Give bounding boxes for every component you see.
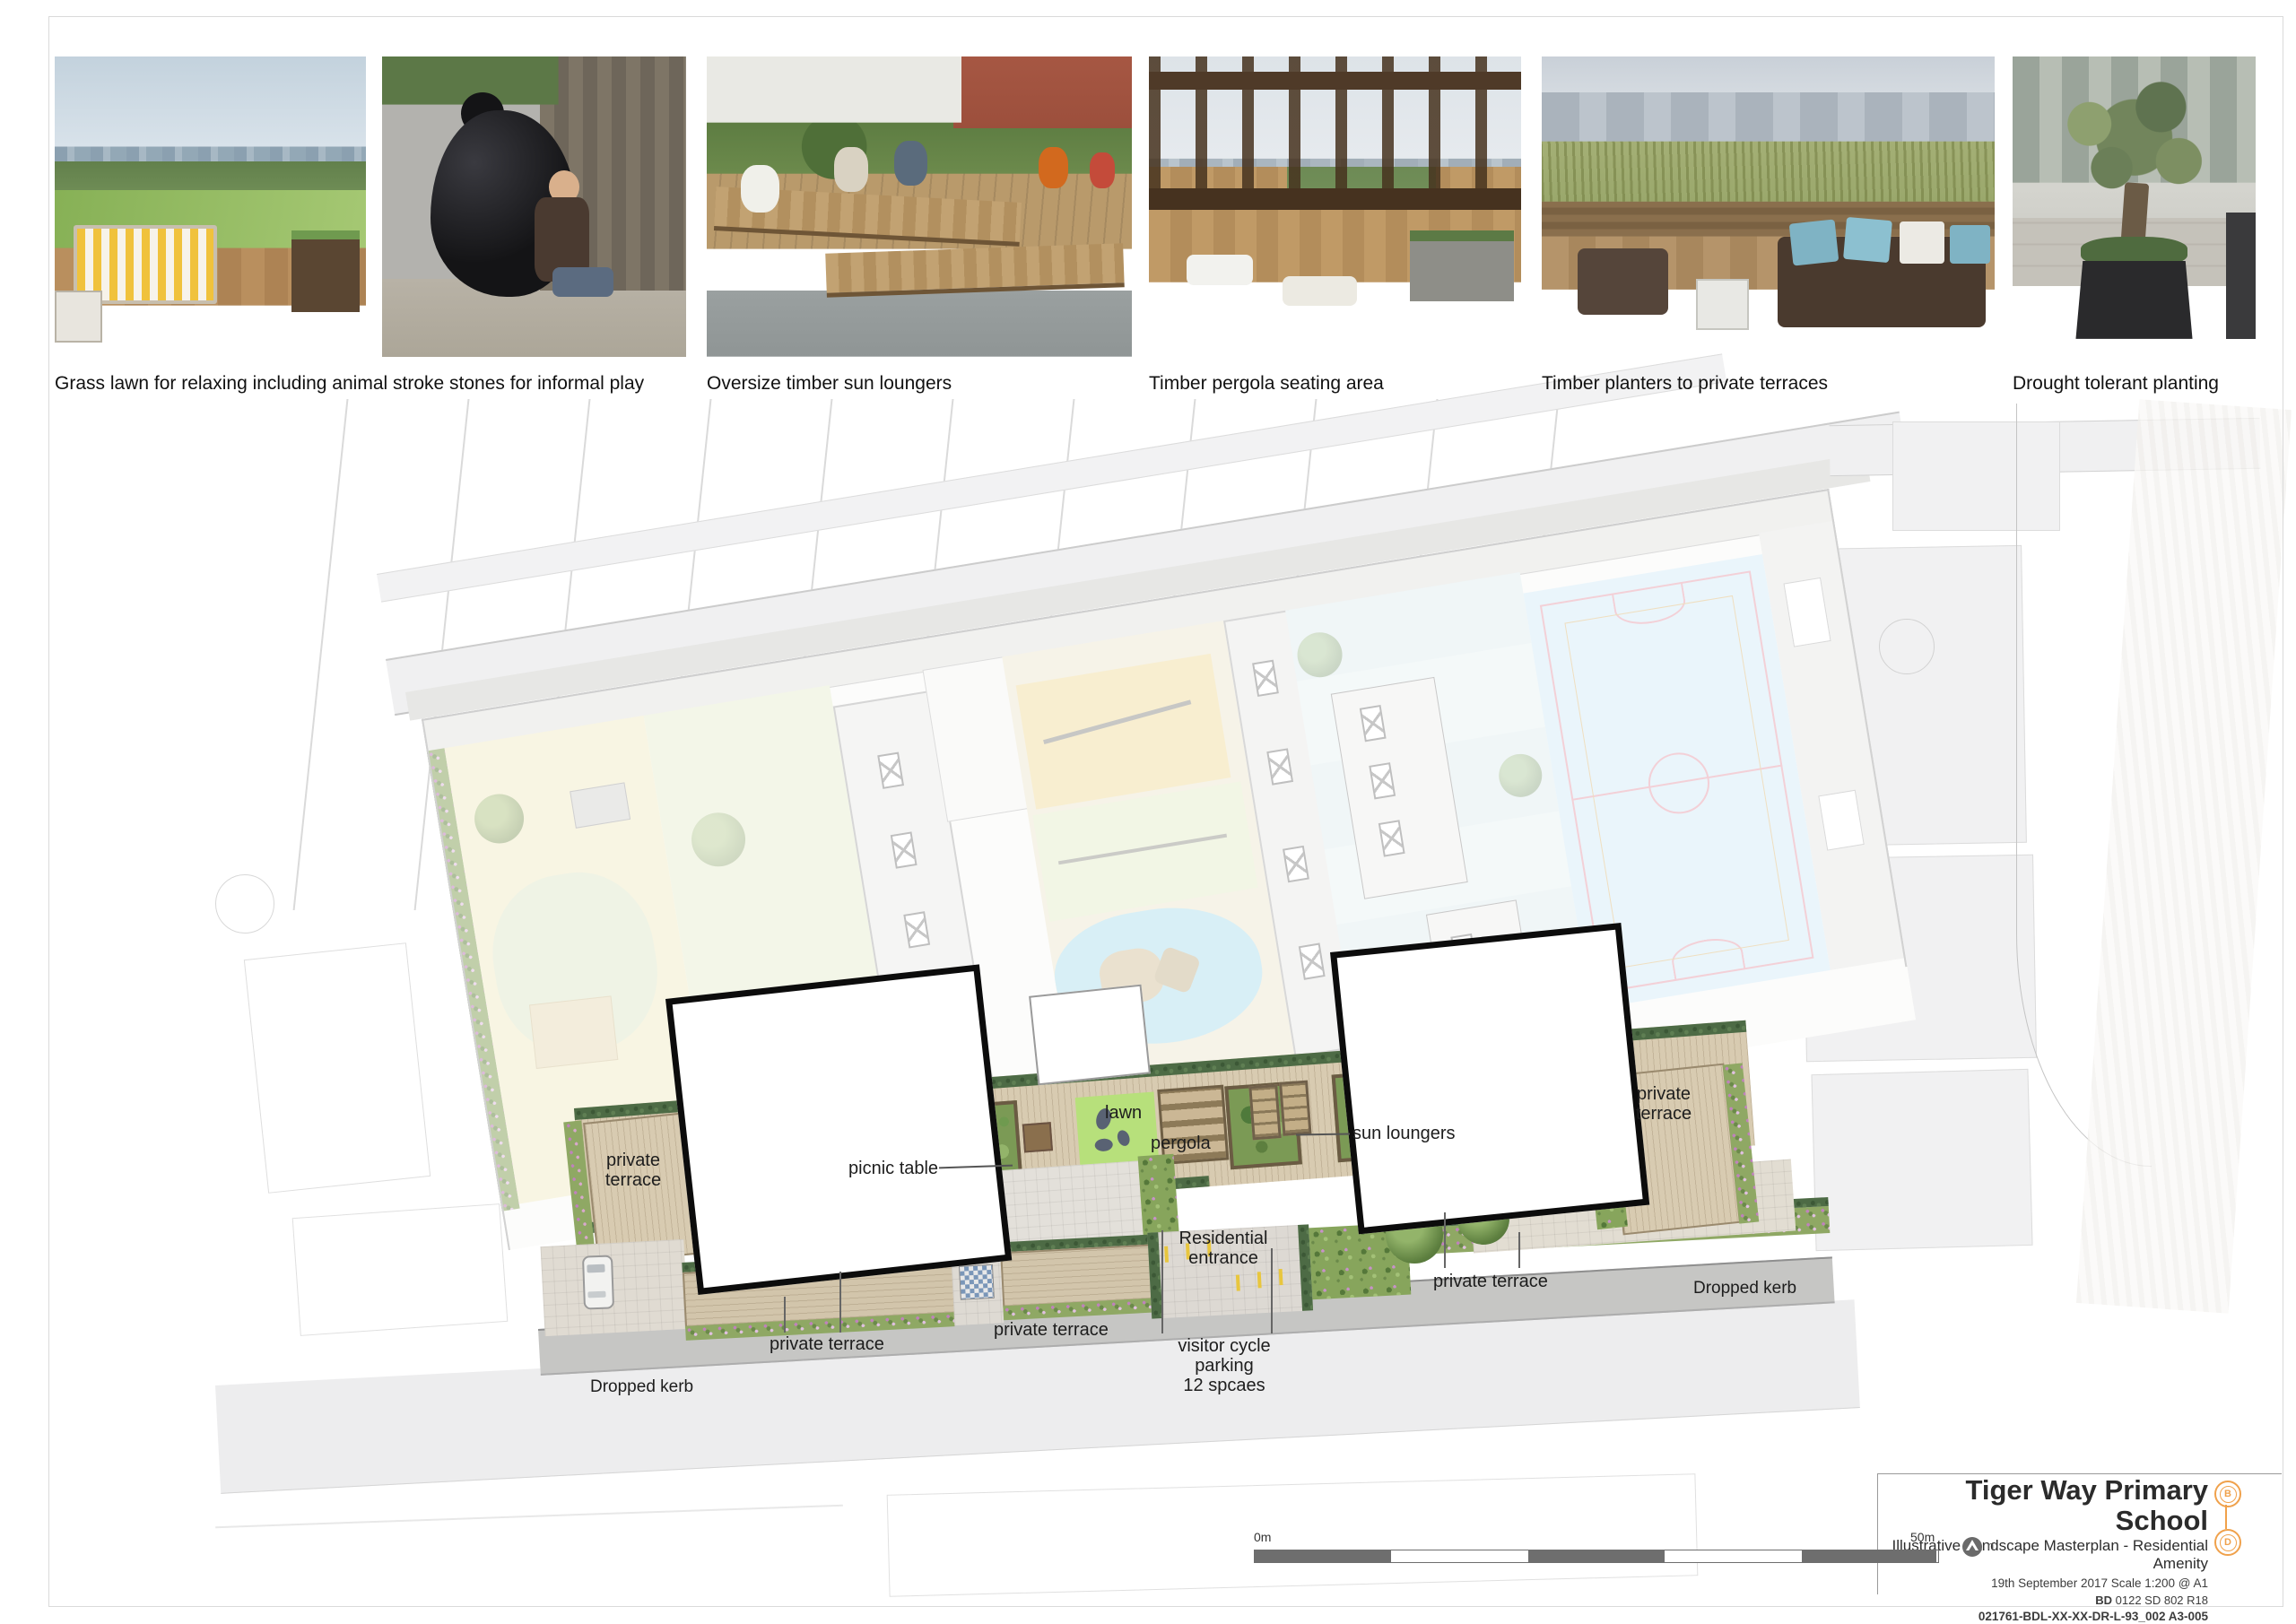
leader-line: [1161, 1230, 1163, 1333]
side-table: [55, 291, 102, 343]
revision-marker-b: B: [2214, 1481, 2241, 1507]
lounger: [825, 244, 1124, 298]
scale-bar-end-label: 50m: [1910, 1530, 1935, 1544]
person: [1090, 152, 1115, 188]
label-private-terrace-southwest: private terrace: [770, 1334, 884, 1354]
cushion: [1283, 276, 1357, 307]
planter: [1410, 230, 1514, 301]
label-lawn: lawn: [1105, 1103, 1142, 1123]
caption-drought-planting: Drought tolerant planting: [2013, 373, 2219, 395]
pergola-beam: [1149, 72, 1521, 90]
leader-line: [1444, 1212, 1446, 1268]
scale-bar-segment: [1255, 1550, 1391, 1562]
photo-roof-lawn: [55, 56, 366, 357]
scale-bar: [1254, 1550, 1939, 1563]
reference-numbers: 0122 SD 802 R18: [2116, 1594, 2208, 1607]
revision-marker-connector: [2225, 1505, 2227, 1529]
photo-terrace-planters: [1542, 56, 1995, 357]
reference-line: BD 0122 SD 802 R18: [1883, 1594, 2208, 1607]
photo-sun-loungers: [707, 56, 1132, 357]
north-arrow-icon: [1962, 1537, 1982, 1557]
leader-line: [1518, 1232, 1520, 1268]
label-residential-entrance: Residential entrance: [1173, 1229, 1274, 1268]
label-pergola: pergola: [1151, 1133, 1211, 1153]
boy-legs: [552, 267, 613, 298]
caption-sun-loungers: Oversize timber sun loungers: [707, 373, 952, 395]
reference-prefix: BD: [2095, 1594, 2112, 1607]
drawing-number: 021761-BDL-XX-XX-DR-L-93_002 A3-005: [1883, 1610, 2208, 1624]
building-footprint-east: [1330, 923, 1649, 1234]
leader-line: [839, 1272, 841, 1333]
building-footprint-west: [665, 964, 1012, 1295]
label-private-terrace-east: private terrace: [1618, 1084, 1709, 1124]
photo-olive-tree: [2013, 56, 2256, 357]
black-planter-right: [2226, 213, 2256, 339]
sofa-left: [1578, 248, 1668, 315]
label-picnic-table: picnic table: [848, 1159, 938, 1178]
title-block-border-left: [1877, 1473, 1878, 1594]
caption-pergola: Timber pergola seating area: [1149, 373, 1384, 395]
cushion-blue: [1843, 217, 1892, 263]
planter: [291, 230, 360, 311]
north-arrow-notch: [1968, 1545, 1977, 1552]
cushion: [1187, 255, 1254, 285]
person: [834, 147, 868, 192]
label-visitor-cycle-parking: visitor cycle parking 12 spcaes: [1148, 1336, 1300, 1395]
revision-marker-d: D: [2214, 1529, 2241, 1556]
date-and-scale: 19th September 2017 Scale 1:200 @ A1: [1883, 1576, 2208, 1591]
person: [1039, 147, 1068, 189]
cushion-blue: [1950, 225, 1990, 265]
label-sun-loungers: sun loungers: [1352, 1124, 1456, 1143]
scale-bar-segment: [1391, 1550, 1528, 1562]
label-private-terrace-midright: private terrace: [1433, 1272, 1548, 1291]
label-dropped-kerb-east: Dropped kerb: [1693, 1279, 1796, 1298]
person: [894, 141, 928, 186]
cube-table: [1696, 279, 1750, 331]
person: [741, 165, 779, 213]
pergola-beam: [1149, 188, 1521, 209]
caption-grass-lawn: Grass lawn for relaxing including animal…: [55, 373, 644, 395]
label-private-terrace-south: private terrace: [994, 1320, 1109, 1340]
scale-bar-segment: [1802, 1550, 1936, 1562]
photo-bear-sculpture: [382, 56, 686, 357]
scale-bar-start-label: 0m: [1254, 1530, 1271, 1544]
leader-line: [784, 1297, 786, 1333]
photo-pergola: [1149, 56, 1521, 357]
caption-planters: Timber planters to private terraces: [1542, 373, 1828, 395]
black-planter: [2075, 261, 2192, 339]
cushion-white: [1900, 221, 1945, 264]
revision-marker-b-label: B: [2220, 1486, 2237, 1503]
project-title: Tiger Way Primary School: [1883, 1475, 2208, 1536]
north-label: n: [1987, 1539, 1994, 1552]
scale-bar-segment: [1665, 1550, 1802, 1562]
label-dropped-kerb-west: Dropped kerb: [590, 1377, 693, 1397]
label-private-terrace-west: private terrace: [587, 1151, 679, 1190]
visitor-cycle-parking-line2: 12 spcaes: [1148, 1376, 1300, 1395]
visitor-cycle-parking-line1: visitor cycle parking: [1148, 1336, 1300, 1376]
scale-bar-segment: [1528, 1550, 1665, 1562]
cushion-blue: [1788, 220, 1838, 266]
revision-marker-d-label: D: [2220, 1534, 2237, 1551]
